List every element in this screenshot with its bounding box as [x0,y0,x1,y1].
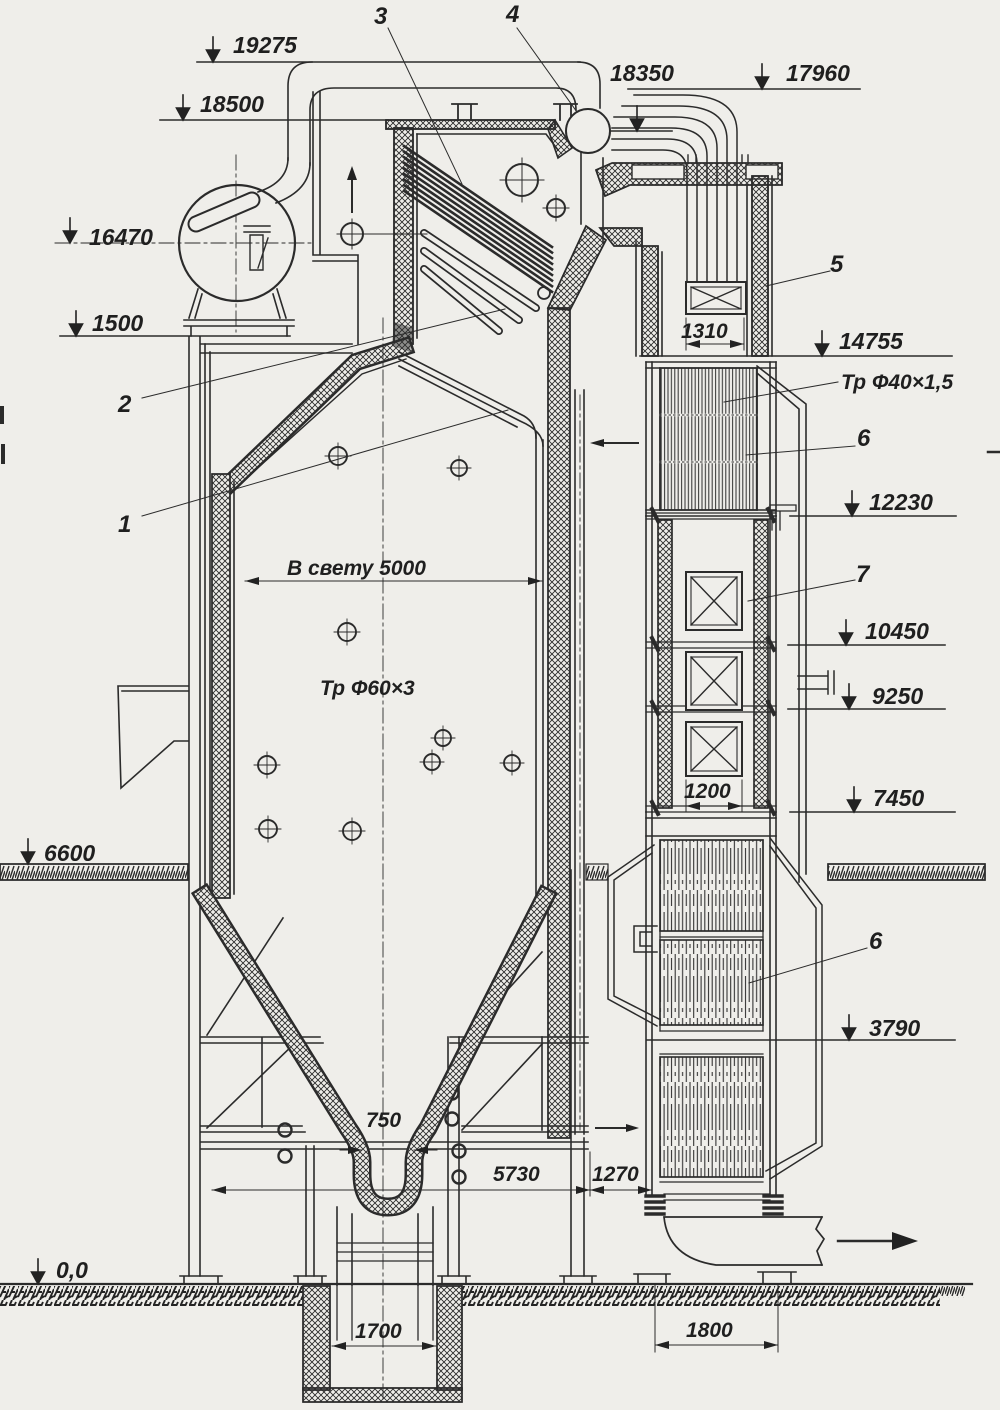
svg-text:16470: 16470 [89,224,153,250]
svg-text:1: 1 [118,511,131,538]
svg-text:6: 6 [869,928,883,955]
svg-text:18500: 18500 [200,91,264,117]
svg-text:10450: 10450 [865,618,929,644]
svg-text:1270: 1270 [592,1163,639,1186]
svg-text:1200: 1200 [684,780,731,803]
svg-text:Тр Ф40×1,5: Тр Ф40×1,5 [841,371,953,394]
svg-text:7450: 7450 [873,785,924,811]
svg-text:1700: 1700 [355,1320,402,1343]
svg-text:3: 3 [374,3,388,30]
svg-text:12230: 12230 [869,489,933,515]
svg-text:14755: 14755 [839,328,904,354]
svg-text:6: 6 [857,425,871,452]
svg-text:18350: 18350 [610,60,674,86]
svg-text:1310: 1310 [681,320,728,343]
svg-text:750: 750 [366,1109,401,1132]
svg-text:17960: 17960 [786,60,850,86]
svg-text:0,0: 0,0 [56,1257,88,1283]
svg-text:1800: 1800 [686,1319,733,1342]
svg-text:3790: 3790 [869,1015,920,1041]
svg-text:2: 2 [117,391,132,418]
svg-text:4: 4 [505,1,519,28]
svg-text:Тр Ф60×3: Тр Ф60×3 [320,677,415,700]
svg-text:19275: 19275 [233,32,298,58]
svg-text:5730: 5730 [493,1163,540,1186]
svg-text:В свету 5000: В свету 5000 [287,557,426,580]
svg-text:9250: 9250 [872,683,923,709]
svg-text:5: 5 [830,251,844,278]
svg-text:1500: 1500 [92,310,143,336]
svg-text:6600: 6600 [44,840,95,866]
svg-text:7: 7 [856,561,871,588]
